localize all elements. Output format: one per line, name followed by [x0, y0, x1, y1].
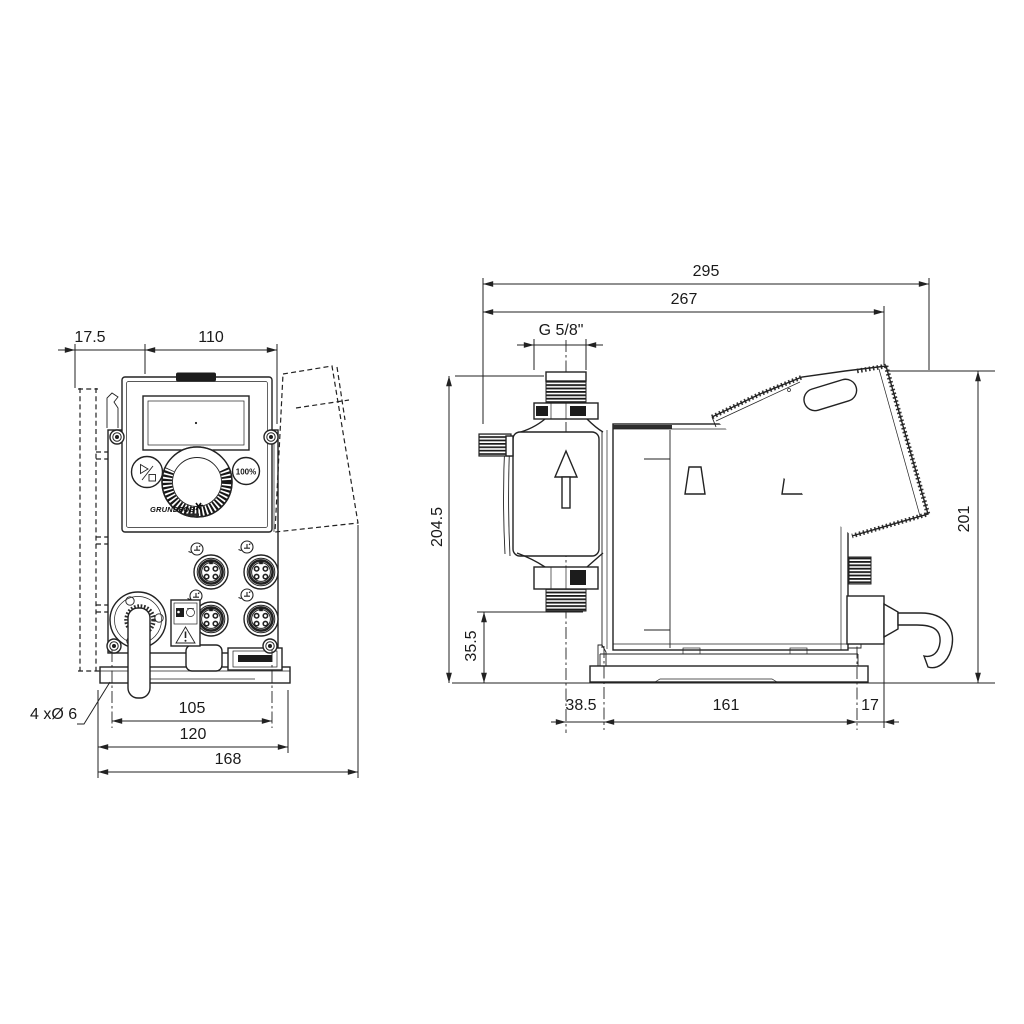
display-dot [195, 422, 197, 424]
discharge-valve-thread [534, 372, 598, 419]
dim-text-168: 168 [215, 751, 242, 768]
dim-side-base-length: 161 [604, 697, 857, 722]
dim-front-panel-width: 110 [145, 329, 277, 350]
dim-text-161: 161 [713, 697, 740, 714]
dim-text-201: 201 [956, 506, 973, 533]
panel-top-tab [176, 373, 216, 382]
connector-socket-2[interactable] [244, 555, 278, 589]
panel-rotated-dashed-outline [275, 366, 358, 532]
top-lug-left [685, 467, 705, 494]
logo-tagline [186, 514, 199, 516]
dim-side-overall-height: 201 [956, 371, 978, 683]
dim-text-35-5: 35.5 [463, 630, 480, 661]
cable-plug-housing [847, 596, 884, 644]
warning-label [171, 600, 200, 646]
dim-side-height-valve: 204.5 [429, 376, 449, 683]
air-bleed-knob[interactable] [479, 434, 513, 456]
dim-text-38-5: 38.5 [565, 697, 596, 714]
dim-text-17-5: 17.5 [74, 329, 105, 346]
wall-bracket-dashed-outline [78, 388, 112, 671]
dosing-head-body [513, 432, 599, 556]
dim-side-base-end: 17 [857, 697, 899, 722]
logo-text: GRUNDFOS [150, 505, 195, 514]
connector-socket-4[interactable] [244, 602, 278, 636]
pump-head-adapter [602, 428, 613, 650]
dim-side-valve-clearance: 35.5 [463, 612, 484, 683]
front-view: 100% GRUNDFOS [30, 329, 358, 778]
hundred-percent-label: 100% [236, 468, 256, 477]
dim-text-g58: G 5/8" [539, 322, 584, 339]
dim-front-plate-width: 120 [98, 726, 288, 747]
dim-side-valve-offset: 38.5 [551, 697, 604, 722]
callout-text-4xd6: 4 xØ 6 [30, 706, 77, 723]
dim-text-267: 267 [671, 291, 698, 308]
body-top-left-bracket [107, 393, 118, 428]
foot-left [186, 645, 222, 671]
power-connector-side [847, 557, 952, 668]
dim-text-105: 105 [179, 700, 206, 717]
drawing-canvas: 100% GRUNDFOS [0, 0, 1024, 1024]
dim-text-120: 120 [180, 726, 207, 743]
dimension-drawing-svg: 100% GRUNDFOS [0, 0, 1024, 1024]
connection-stud [849, 557, 871, 584]
dim-front-hole-spacing: 105 [112, 700, 272, 721]
dim-text-17: 17 [861, 697, 879, 714]
dim-front-overall-width: 168 [98, 751, 358, 772]
dim-side-overall-depth: 295 [483, 263, 929, 284]
control-panel: 100% GRUNDFOS [122, 373, 272, 533]
screw-bottom-right-icon [263, 639, 277, 653]
dim-text-204-5: 204.5 [429, 507, 446, 547]
dim-front-offset-left: 17.5 [58, 329, 145, 350]
connector-socket-1[interactable] [194, 555, 228, 589]
dim-side-depth-to-panel: 267 [483, 291, 884, 312]
start-stop-button[interactable] [132, 457, 163, 488]
dim-text-295: 295 [693, 263, 720, 280]
dosing-head-side [479, 340, 603, 733]
dim-side-thread-size: G 5/8" [517, 322, 603, 345]
power-cable-front [128, 608, 150, 698]
suction-valve-thread [534, 567, 598, 611]
side-view: 295 267 G 5/8" 204.5 35.5 [429, 263, 995, 733]
hundred-percent-button[interactable]: 100% [233, 458, 260, 485]
screw-top-left-icon [110, 430, 124, 444]
power-cable-side [898, 613, 952, 668]
screw-top-right-icon [264, 430, 278, 444]
dim-text-110: 110 [198, 329, 224, 346]
